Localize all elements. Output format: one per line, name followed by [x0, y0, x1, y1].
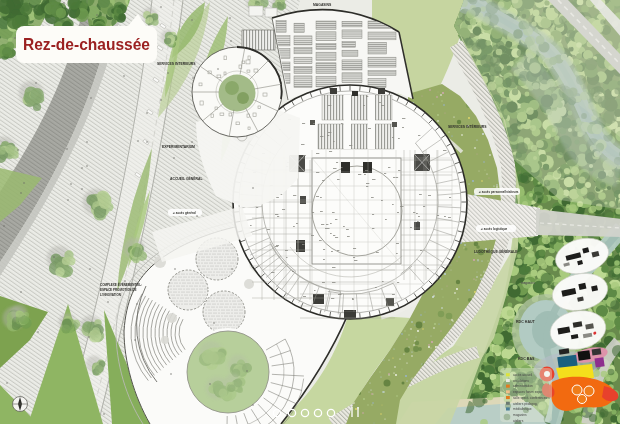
svg-text:LUDOTHÈQUE GÉNÉRALE: LUDOTHÈQUE GÉNÉRALE	[474, 249, 518, 254]
svg-text:RDC BAS: RDC BAS	[518, 357, 535, 361]
svg-text:ateliers: ateliers	[513, 419, 524, 423]
svg-text:Rez-de-chaussée: Rez-de-chaussée	[23, 35, 150, 53]
svg-text:MAGASINS: MAGASINS	[313, 3, 332, 7]
svg-text:accès accueil: accès accueil	[513, 373, 532, 377]
svg-text:◄ accès général: ◄ accès général	[172, 211, 196, 215]
svg-text:ESPACE PROMOTION DE: ESPACE PROMOTION DE	[100, 288, 136, 292]
svg-text:L'INNOVATION: L'INNOVATION	[100, 293, 121, 297]
svg-text:COMPLEXE ÉVÉNEMENTIEL:: COMPLEXE ÉVÉNEMENTIEL:	[100, 282, 142, 287]
svg-text:magasins: magasins	[521, 281, 535, 285]
svg-text:ateliers pédagog.: ateliers pédagog.	[513, 402, 538, 406]
svg-text:SERVICES INTÉRIEURS: SERVICES INTÉRIEURS	[448, 124, 487, 129]
svg-text:circulations: circulations	[513, 379, 529, 383]
svg-text:ACCUEIL GÉNÉRAL: ACCUEIL GÉNÉRAL	[170, 176, 203, 181]
svg-text:◄ accès logistique: ◄ accès logistique	[480, 227, 507, 231]
svg-text:◄ accès personnel/visiteurs: ◄ accès personnel/visiteurs	[478, 190, 519, 194]
svg-text:espaces forum expo: espaces forum expo	[513, 390, 542, 394]
svg-text:salle spect. conférences: salle spect. conférences	[513, 396, 548, 400]
svg-text:magasins: magasins	[513, 413, 527, 417]
svg-text:administration: administration	[513, 384, 533, 388]
svg-text:médiathèque: médiathèque	[513, 407, 532, 411]
svg-text:RDC HAUT: RDC HAUT	[516, 320, 536, 324]
svg-text:SERVICES INTERIEURS: SERVICES INTERIEURS	[157, 62, 196, 66]
svg-text:EXPERIMENTARIUM: EXPERIMENTARIUM	[162, 145, 195, 149]
